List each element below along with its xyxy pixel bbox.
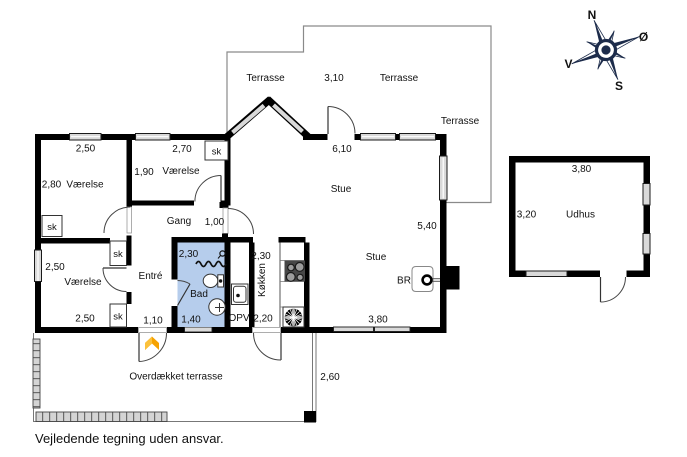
svg-text:3,80: 3,80 xyxy=(368,315,388,326)
svg-text:1,10: 1,10 xyxy=(143,316,163,327)
svg-text:Køkken: Køkken xyxy=(257,263,268,297)
svg-text:1,90: 1,90 xyxy=(134,167,154,178)
svg-text:2,50: 2,50 xyxy=(75,314,95,325)
svg-text:3,10: 3,10 xyxy=(324,73,344,84)
svg-text:2,20: 2,20 xyxy=(253,314,273,325)
svg-text:5,40: 5,40 xyxy=(417,221,437,232)
svg-text:3,80: 3,80 xyxy=(572,164,592,175)
svg-text:6,10: 6,10 xyxy=(332,144,352,155)
svg-text:2,50: 2,50 xyxy=(45,262,65,273)
svg-text:sk: sk xyxy=(47,222,57,233)
svg-text:N: N xyxy=(588,8,597,22)
svg-text:V: V xyxy=(564,57,572,71)
svg-text:OPV: OPV xyxy=(228,313,249,324)
svg-text:2,80: 2,80 xyxy=(42,180,62,191)
svg-text:Stue: Stue xyxy=(366,252,387,263)
svg-text:Ø: Ø xyxy=(639,30,648,44)
svg-text:Overdækket terrasse: Overdækket terrasse xyxy=(129,372,223,383)
svg-text:3,20: 3,20 xyxy=(517,210,537,221)
svg-text:1,00: 1,00 xyxy=(205,217,225,228)
svg-text:Værelse: Værelse xyxy=(162,166,200,177)
svg-text:BR: BR xyxy=(397,276,411,287)
svg-text:2,30: 2,30 xyxy=(179,249,199,260)
svg-text:2,30: 2,30 xyxy=(251,251,271,262)
svg-text:2,50: 2,50 xyxy=(76,144,96,155)
svg-text:1,40: 1,40 xyxy=(181,315,201,326)
svg-text:Terrasse: Terrasse xyxy=(380,73,419,84)
svg-text:2,70: 2,70 xyxy=(172,144,192,155)
svg-text:Terrasse: Terrasse xyxy=(441,116,480,127)
svg-text:S: S xyxy=(615,79,623,93)
svg-text:Stue: Stue xyxy=(331,184,352,195)
svg-text:Værelse: Værelse xyxy=(66,180,104,191)
svg-text:Vejledende tegning uden ansvar: Vejledende tegning uden ansvar. xyxy=(35,431,224,446)
svg-text:2,60: 2,60 xyxy=(320,372,340,383)
svg-text:Gang: Gang xyxy=(167,216,191,227)
svg-text:Udhus: Udhus xyxy=(566,210,595,221)
svg-text:Bad: Bad xyxy=(190,289,208,300)
svg-text:Terrasse: Terrasse xyxy=(246,73,285,84)
svg-text:Værelse: Værelse xyxy=(64,277,102,288)
svg-text:sk: sk xyxy=(113,249,123,260)
svg-text:Entré: Entré xyxy=(139,271,163,282)
svg-text:sk: sk xyxy=(212,147,222,158)
svg-text:sk: sk xyxy=(113,312,123,323)
